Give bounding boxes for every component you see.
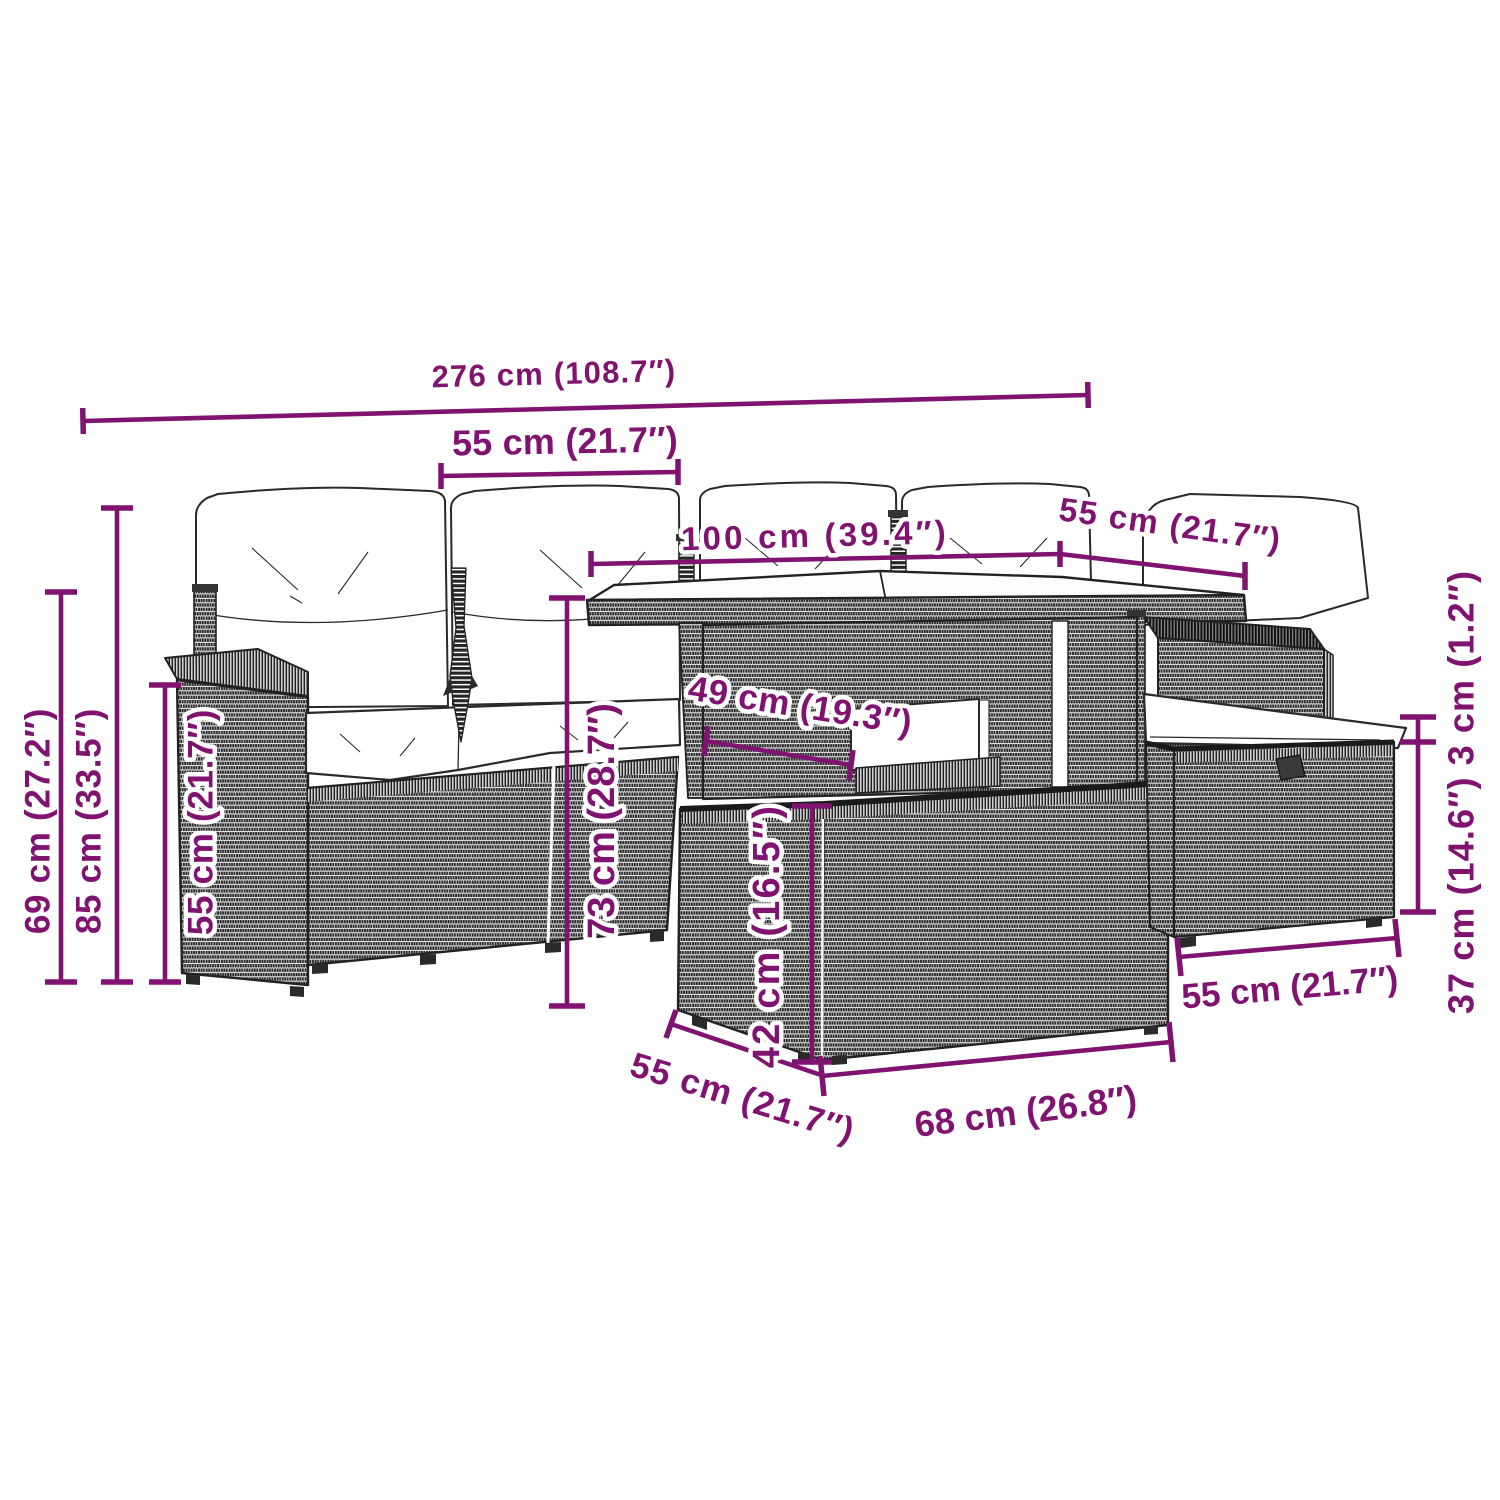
svg-text:73 cm (28.7″): 73 cm (28.7″)	[581, 703, 623, 939]
svg-text:55 cm (21.7″): 55 cm (21.7″)	[452, 419, 679, 464]
svg-text:69 cm (27.2″): 69 cm (27.2″)	[18, 708, 57, 934]
svg-text:100 cm (39.4″): 100 cm (39.4″)	[681, 513, 950, 557]
svg-text:276 cm (108.7″): 276 cm (108.7″)	[431, 353, 677, 394]
svg-text:42 cm (16.5″): 42 cm (16.5″)	[746, 804, 788, 1068]
svg-text:37 cm (14.6″) 3 cm (1.2″): 37 cm (14.6″) 3 cm (1.2″)	[1441, 570, 1482, 1014]
svg-text:55 cm (21.7″): 55 cm (21.7″)	[181, 709, 220, 935]
svg-text:85 cm (33.5″): 85 cm (33.5″)	[69, 708, 108, 934]
